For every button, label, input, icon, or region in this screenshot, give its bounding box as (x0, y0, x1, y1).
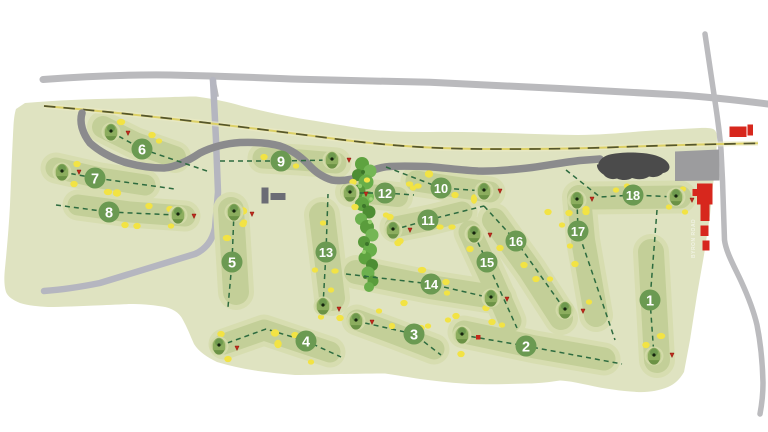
svg-text:11: 11 (421, 213, 435, 228)
svg-text:16: 16 (509, 234, 523, 249)
svg-text:2: 2 (522, 340, 530, 356)
svg-text:6: 6 (138, 143, 146, 159)
svg-text:8: 8 (105, 206, 113, 222)
svg-text:13: 13 (319, 245, 333, 260)
svg-text:4: 4 (302, 335, 310, 351)
svg-text:5: 5 (228, 256, 236, 272)
svg-text:3: 3 (410, 328, 418, 344)
svg-text:9: 9 (277, 155, 285, 171)
svg-text:18: 18 (626, 188, 640, 203)
svg-text:7: 7 (91, 172, 99, 188)
svg-text:15: 15 (480, 255, 494, 270)
svg-text:1: 1 (646, 294, 654, 310)
svg-text:17: 17 (571, 224, 585, 239)
svg-text:14: 14 (424, 277, 439, 292)
svg-text:10: 10 (434, 181, 448, 196)
svg-text:12: 12 (378, 186, 392, 201)
svg-text:BYRON ROAD: BYRON ROAD (691, 219, 697, 258)
